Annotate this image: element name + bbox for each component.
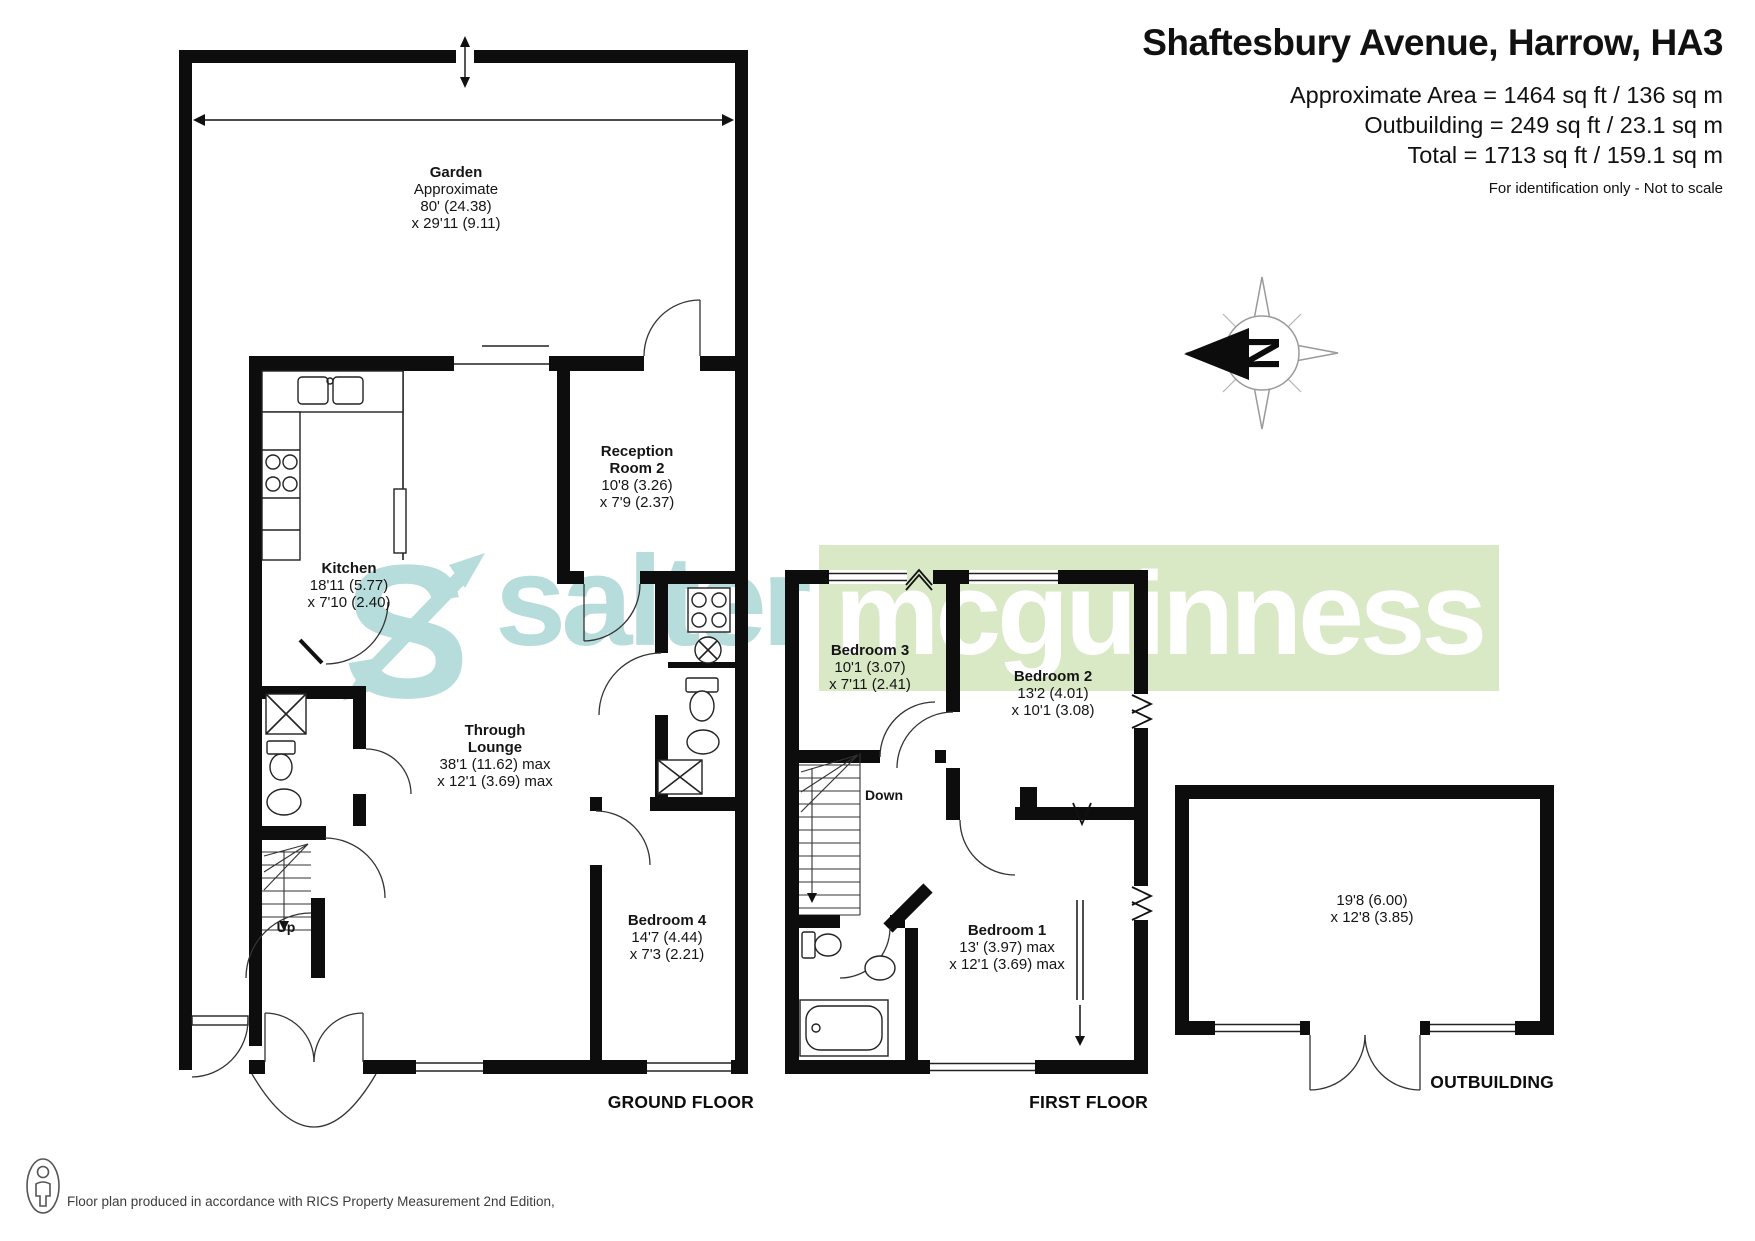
footer-line-1: Floor plan produced in accordance with R… — [67, 1193, 678, 1211]
outbuilding-label: OUTBUILDING — [1430, 1072, 1554, 1093]
footer-disclaimer: Floor plan produced in accordance with R… — [67, 1158, 678, 1241]
through-lounge-label: Through Lounge 38'1 (11.62) max x 12'1 (… — [437, 722, 552, 790]
garden-label: Garden Approximate 80' (24.38) x 29'11 (… — [411, 164, 500, 232]
compass-rose-icon: N — [1184, 277, 1338, 429]
outbuilding-area: Outbuilding = 249 sq ft / 23.1 sq m — [1142, 110, 1723, 140]
bedroom-3-label: Bedroom 3 10'1 (3.07) x 7'11 (2.41) — [829, 642, 911, 693]
bedroom-4-label: Bedroom 4 14'7 (4.44) x 7'3 (2.21) — [628, 912, 706, 963]
approximate-area: Approximate Area = 1464 sq ft / 136 sq m — [1142, 80, 1723, 110]
ground-floor-plan — [246, 300, 748, 1127]
person-oval-icon — [27, 1159, 59, 1213]
reception-room-2-label: Reception Room 2 10'8 (3.26) x 7'9 (2.37… — [600, 443, 675, 511]
stairs-down — [799, 753, 860, 915]
outbuilding-plan — [1175, 785, 1554, 1090]
up-label: Up — [277, 919, 296, 935]
down-label: Down — [865, 787, 903, 803]
header: Shaftesbury Avenue, Harrow, HA3 Approxim… — [1142, 22, 1723, 197]
outbuilding-dims-label: 19'8 (6.00) x 12'8 (3.85) — [1331, 892, 1414, 926]
page-title: Shaftesbury Avenue, Harrow, HA3 — [1142, 22, 1723, 64]
bedroom-1-label: Bedroom 1 13' (3.97) max x 12'1 (3.69) m… — [949, 922, 1064, 973]
total-area: Total = 1713 sq ft / 159.1 sq m — [1142, 140, 1723, 170]
floorplan-page: S salter mcguinness — [0, 0, 1755, 1241]
ground-floor-label: GROUND FLOOR — [608, 1092, 754, 1113]
first-floor-label: FIRST FLOOR — [1029, 1092, 1148, 1113]
disclaimer: For identification only - Not to scale — [1142, 180, 1723, 197]
kitchen-label: Kitchen 18'11 (5.77) x 7'10 (2.40) — [308, 560, 391, 611]
bedroom-2-label: Bedroom 2 13'2 (4.01) x 10'1 (3.08) — [1012, 668, 1095, 719]
